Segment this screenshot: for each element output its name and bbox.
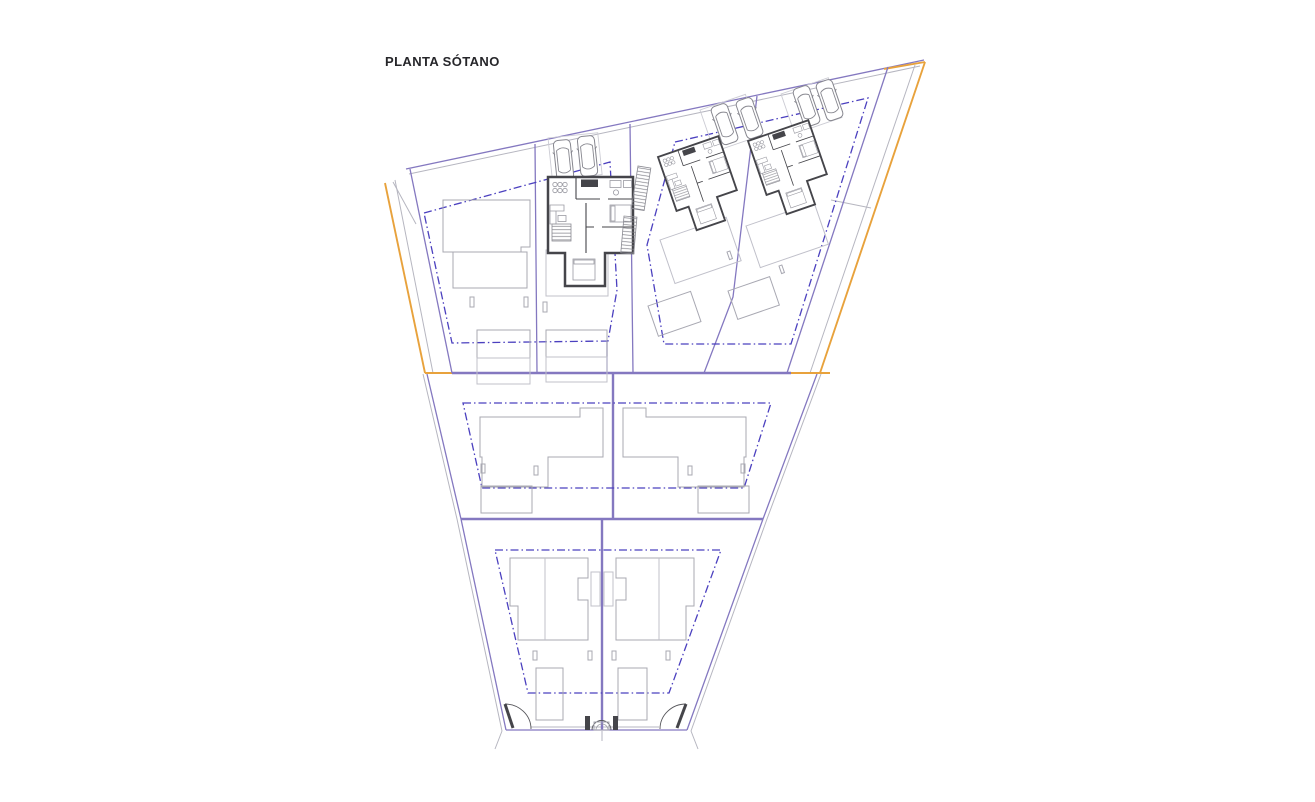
site-boundary — [385, 60, 925, 749]
column-post — [534, 466, 538, 475]
plot-2 — [543, 133, 633, 382]
building-outline — [443, 200, 530, 288]
lower-row-right-plot — [604, 558, 694, 720]
pool — [618, 668, 647, 720]
stair-well — [604, 572, 613, 606]
stair-well — [591, 572, 600, 606]
terrace — [546, 330, 607, 357]
floor-plan-page: PLANTA SÓTANO — [0, 0, 1315, 802]
building-outline — [510, 558, 588, 640]
lower-row-left-plot — [510, 558, 600, 720]
column-post — [543, 302, 547, 312]
gate-icon-left — [505, 704, 531, 729]
entrance-gates — [505, 704, 686, 730]
column-post — [470, 297, 474, 307]
basement-unit-3 — [658, 136, 745, 234]
building-outline — [623, 408, 746, 487]
column-post — [612, 651, 616, 660]
terrace — [728, 277, 779, 320]
stair-icon — [621, 216, 637, 254]
column-post — [666, 651, 670, 660]
terrace — [477, 330, 530, 358]
column-post — [588, 651, 592, 660]
column-post — [727, 251, 732, 260]
basement-unit-2 — [548, 177, 633, 286]
north-boundary-line — [406, 60, 924, 169]
building-outline — [616, 558, 694, 640]
pool — [481, 486, 532, 513]
middle-row-right-plot — [623, 408, 749, 513]
building-outline — [480, 408, 603, 487]
column-post — [688, 466, 692, 475]
setback-lower-row — [495, 550, 721, 693]
pool — [536, 668, 563, 720]
middle-row-left-plot — [480, 408, 603, 513]
column-post — [533, 651, 537, 660]
column-post — [524, 297, 528, 307]
plot-1 — [443, 200, 530, 384]
terrace — [477, 358, 530, 384]
plot-3 — [648, 94, 766, 336]
terrace — [546, 357, 607, 382]
site-plan-drawing — [0, 0, 1315, 802]
terrace — [648, 291, 701, 336]
setback-middle-row — [463, 403, 771, 488]
stair-icon — [631, 166, 651, 211]
pool — [698, 486, 749, 513]
column-post — [779, 265, 784, 274]
gate-icon-right — [660, 704, 686, 729]
